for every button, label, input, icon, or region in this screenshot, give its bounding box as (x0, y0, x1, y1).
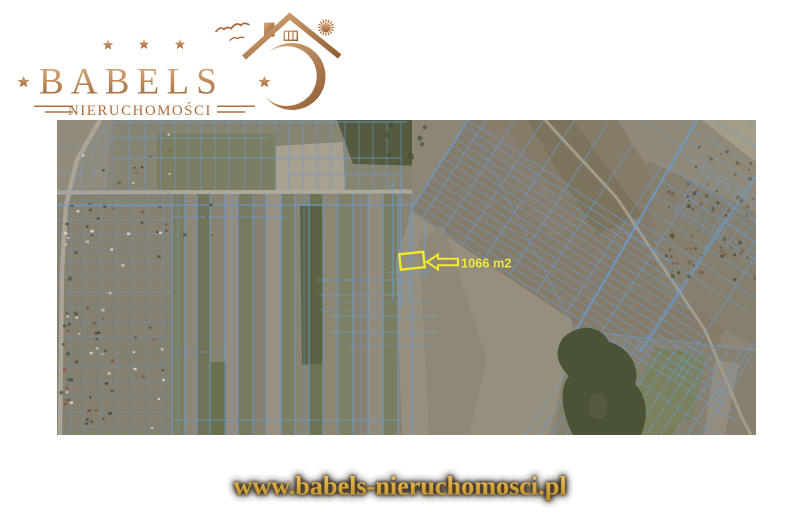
svg-text:BABELS: BABELS (39, 62, 224, 103)
svg-text:www.babels-nieruchomosci.pl: www.babels-nieruchomosci.pl (233, 472, 566, 501)
svg-text:1066 m2: 1066 m2 (461, 256, 512, 271)
svg-text:NIERUCHOMOŚCI: NIERUCHOMOŚCI (68, 102, 212, 119)
